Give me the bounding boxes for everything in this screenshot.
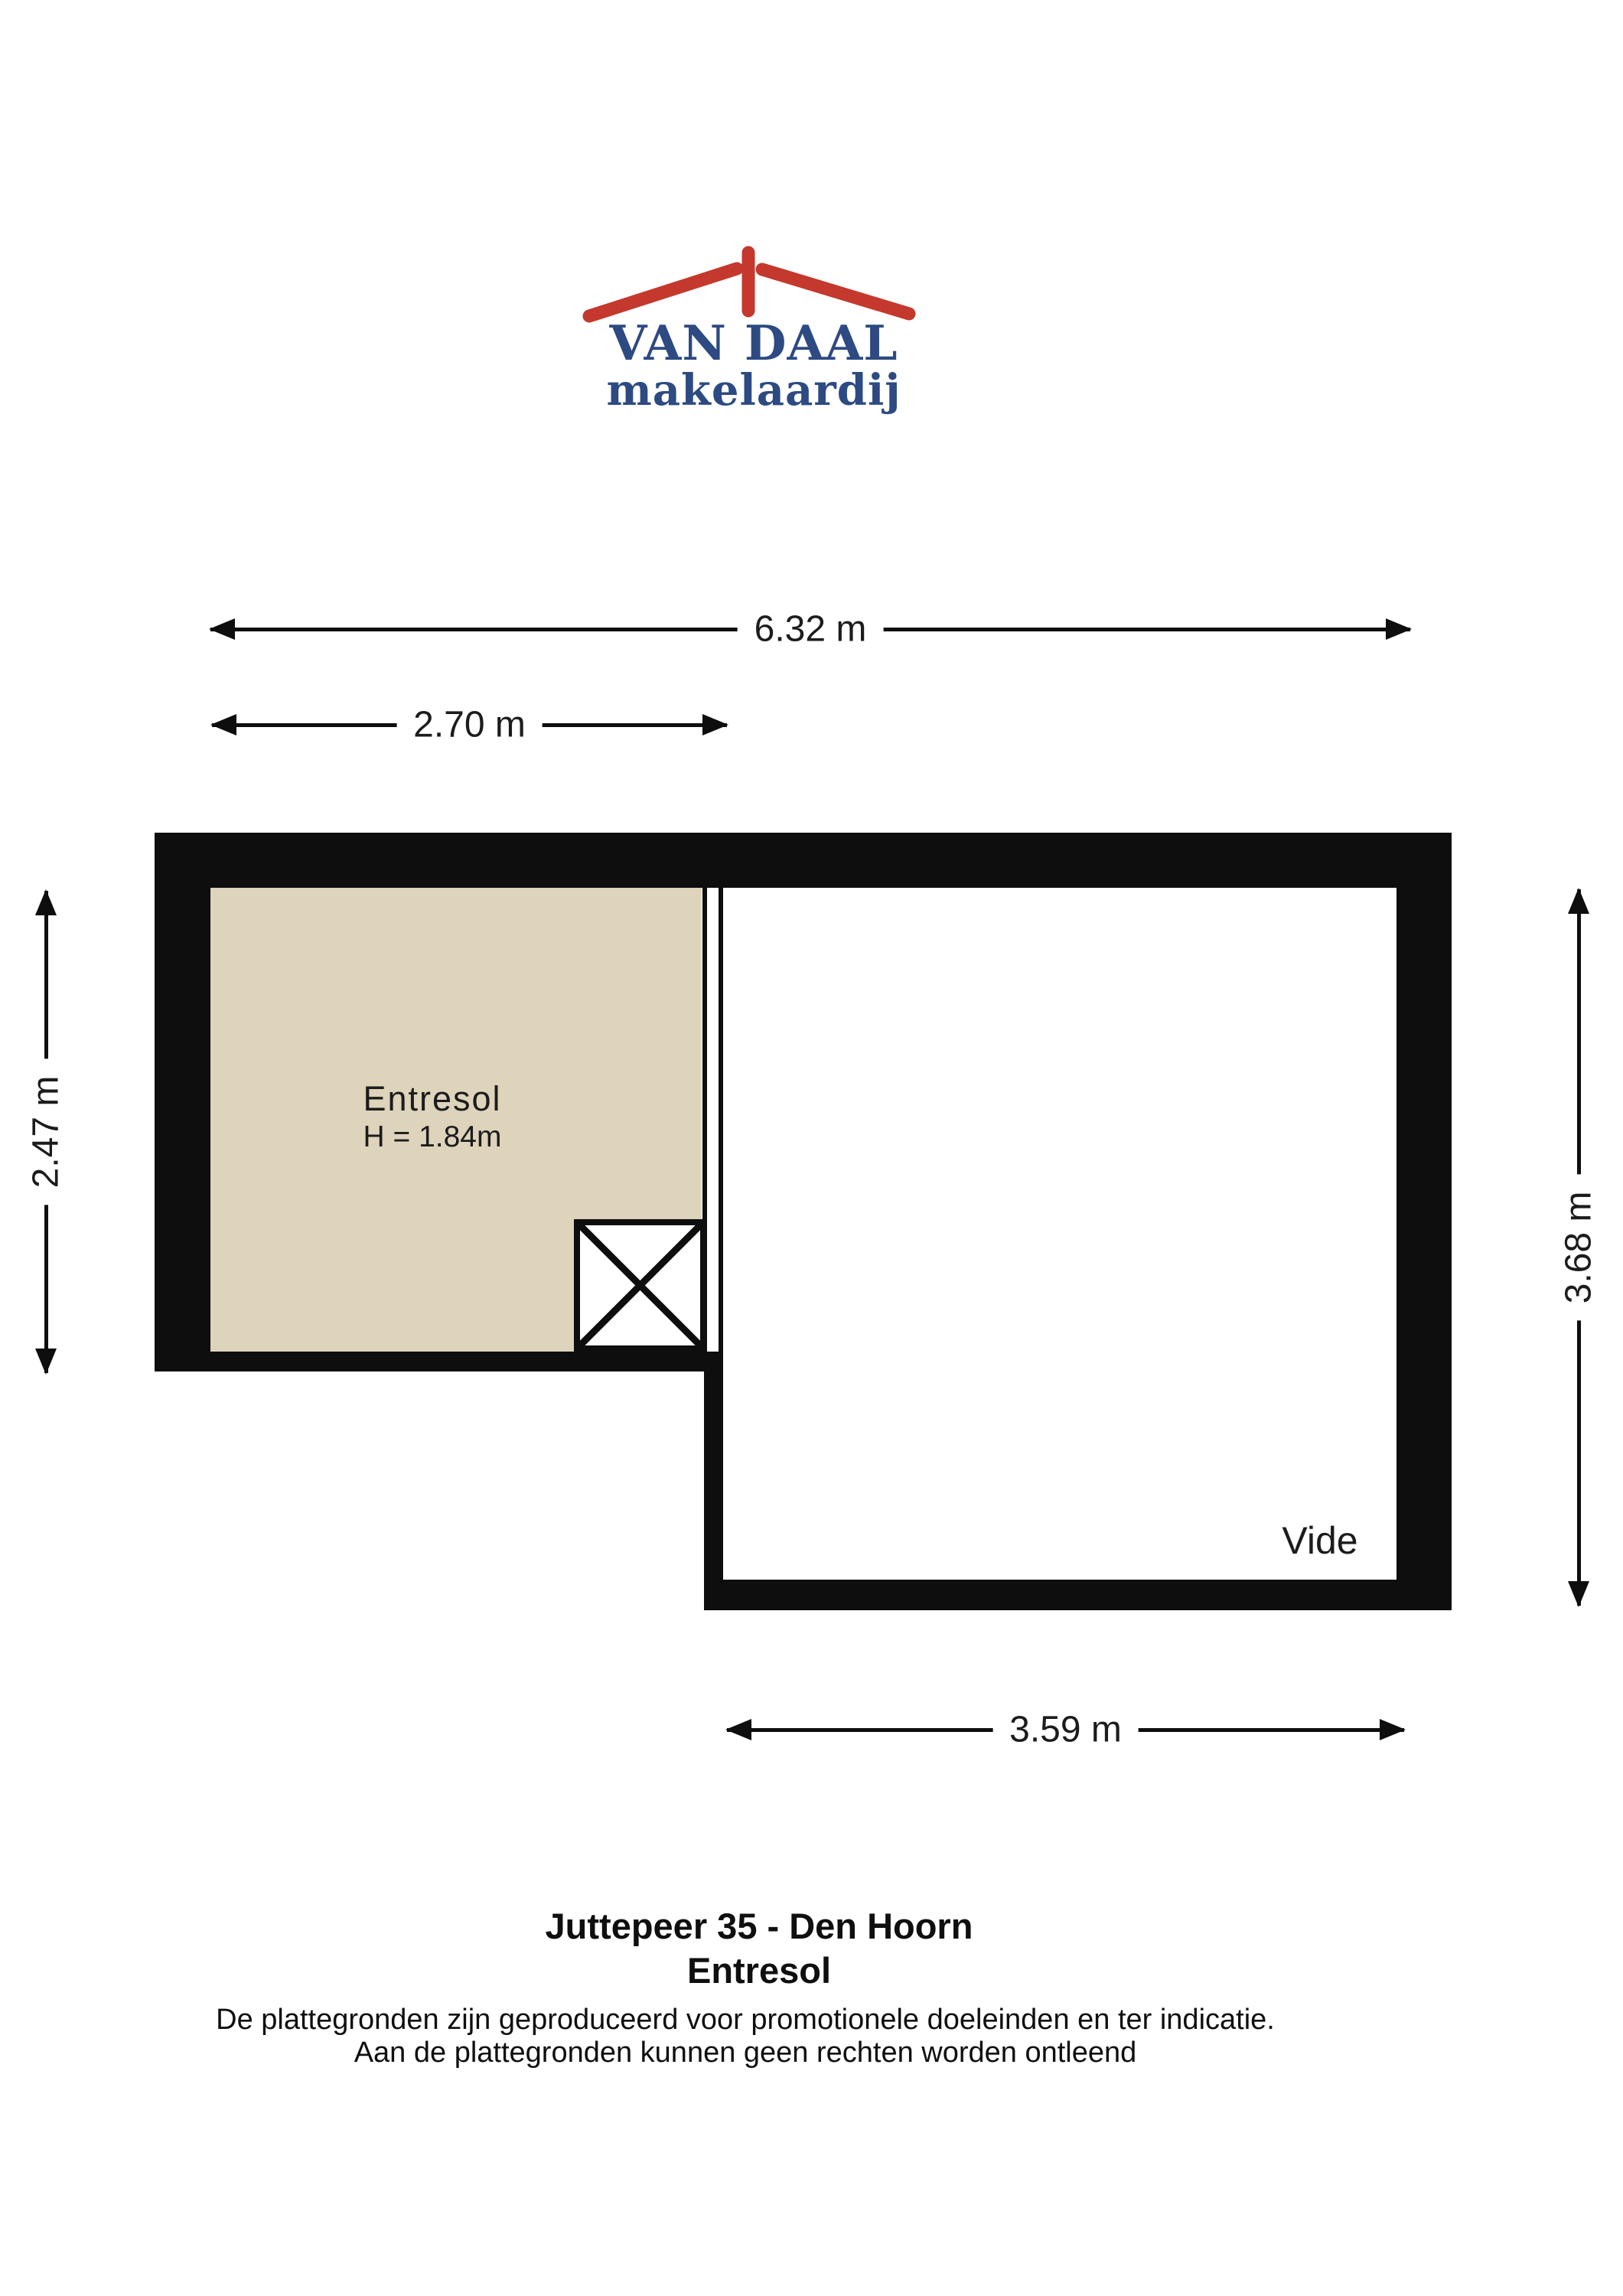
room-name-vide: Vide	[1243, 1518, 1396, 1563]
footer-address: Juttepeer 35 - Den Hoorn	[0, 1904, 1518, 1949]
wall-vide-left	[704, 1352, 723, 1610]
disclaimer-line-1: De plattegronden zijn geproduceerd voor …	[0, 2004, 1491, 2037]
floorplan-page: { "colors": { "brand-blue": "#2d4a82", "…	[0, 0, 1623, 2296]
wall-vide-bottom	[704, 1580, 1452, 1610]
footer-disclaimer-block: De plattegronden zijn geproduceerd voor …	[0, 2004, 1491, 2069]
wall-left	[155, 833, 210, 1370]
wall-top	[155, 833, 1452, 888]
entresol-label-block: Entresol H = 1.84m	[279, 1079, 585, 1156]
void-cross-icon	[574, 1219, 706, 1352]
wall-right	[1396, 833, 1452, 1610]
room-ceiling-height: H = 1.84m	[279, 1119, 585, 1156]
wall-entresol-bottom	[155, 1352, 723, 1371]
railing-line-inner	[719, 888, 723, 1352]
footer-title-block: Juttepeer 35 - Den Hoorn Entresol	[0, 1904, 1518, 1993]
disclaimer-line-2: Aan de plattegronden kunnen geen rechten…	[0, 2037, 1491, 2069]
room-name-entresol: Entresol	[279, 1079, 585, 1119]
footer-level: Entresol	[0, 1949, 1518, 1993]
